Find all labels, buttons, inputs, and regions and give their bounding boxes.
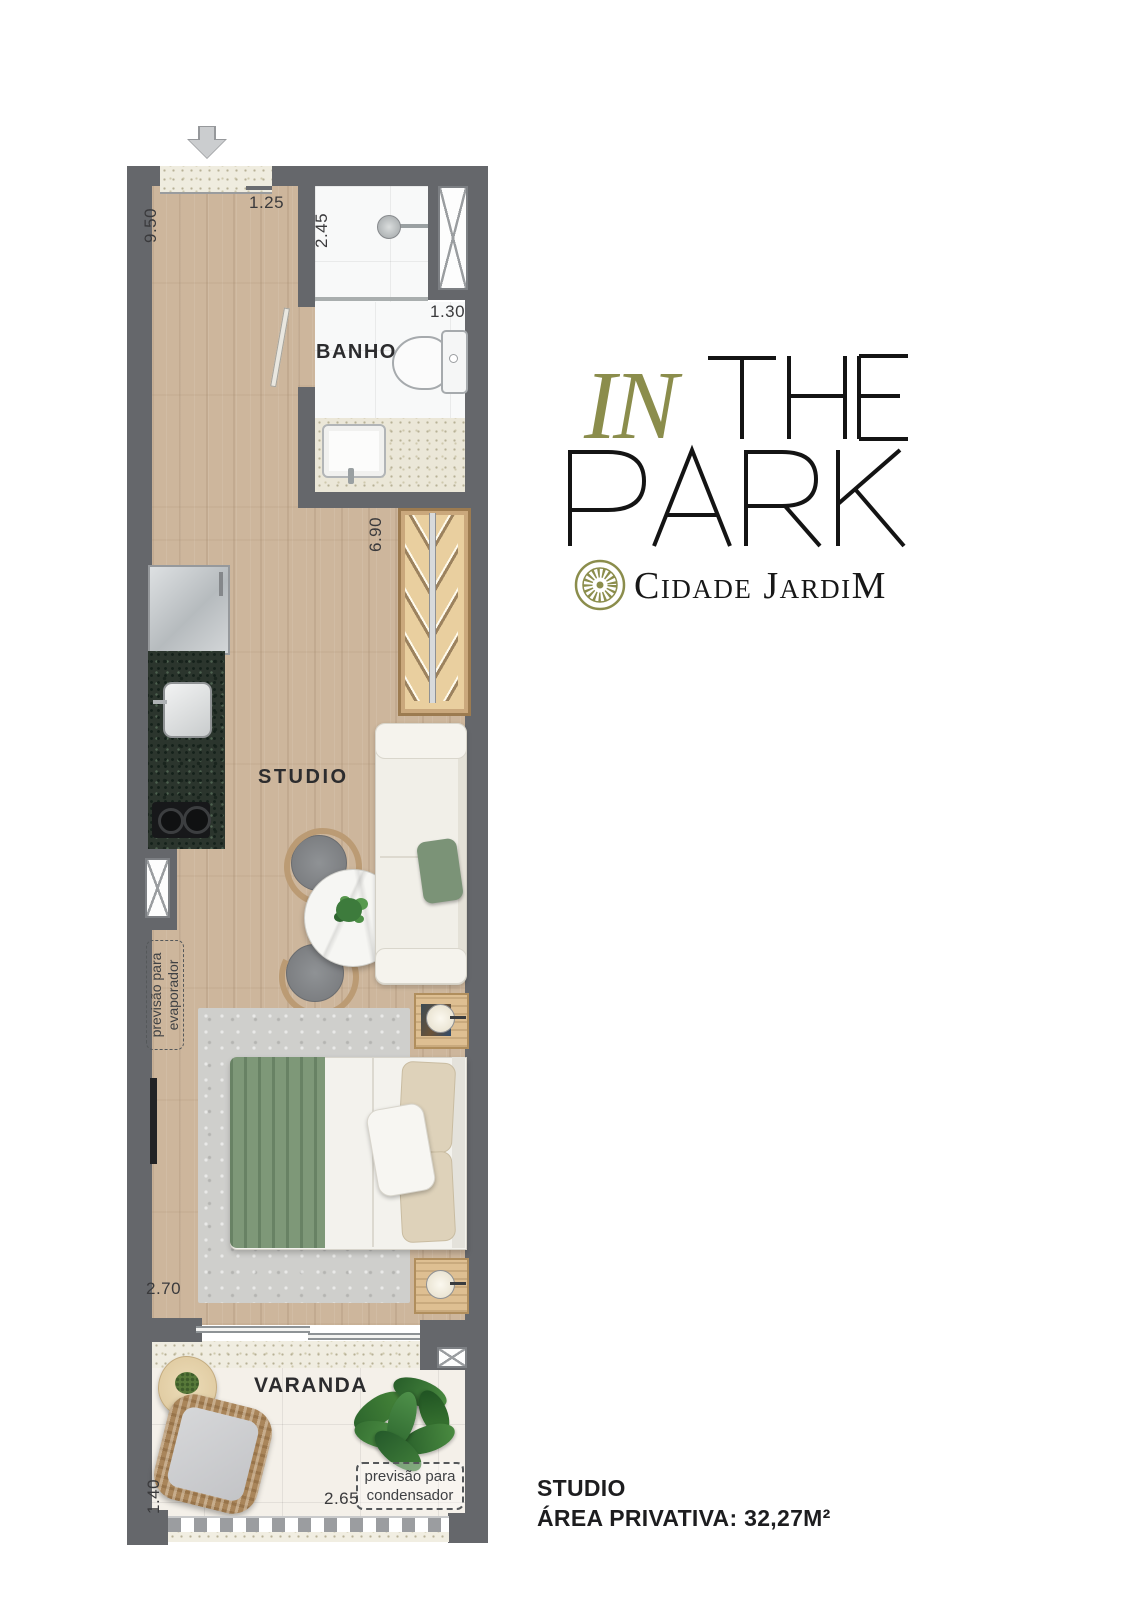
condenser-note-line2: condensador	[358, 1486, 462, 1505]
wall-bottom-right-block	[448, 1513, 488, 1543]
fridge-handle	[219, 572, 223, 596]
shower-head-icon	[377, 215, 401, 239]
table-plant	[336, 898, 362, 922]
toilet-flush-button	[449, 354, 458, 363]
wall-balcony-left-stub	[152, 1318, 202, 1342]
logo-in-text: IN	[583, 352, 683, 459]
room-label-balcony: VARANDA	[254, 1374, 368, 1398]
floorplan-page: previsão para condensador 9.50 1.25 2.45…	[0, 0, 1131, 1600]
logo-park-wordmark	[570, 450, 904, 546]
cooktop-burner	[183, 806, 211, 834]
cooktop-burner	[158, 808, 184, 834]
evaporator-note-line2: evaporador	[165, 943, 182, 1047]
evaporator-note-line1: previsão para	[148, 943, 165, 1047]
condenser-note-line1: previsão para	[358, 1467, 462, 1486]
table-lamp-arm	[450, 1016, 466, 1019]
dim-closet-wall: 6.90	[366, 517, 386, 552]
entry-arrow-head	[189, 140, 225, 158]
wall-bath-bottom	[298, 492, 488, 508]
balcony-railing-ledge	[168, 1532, 449, 1542]
logo-brand-text: Cidade JardiM	[634, 565, 887, 607]
closet	[398, 508, 471, 716]
sofa-armrest	[375, 948, 467, 984]
rosette-icon	[576, 561, 624, 609]
vanity-sink	[322, 424, 386, 478]
footer-private-area: ÁREA PRIVATIVA: 32,27M²	[537, 1505, 831, 1532]
sofa-armrest	[375, 723, 467, 759]
sofa-green-pillow	[416, 838, 464, 905]
dim-entry-width: 1.25	[249, 193, 284, 213]
logo-the-wordmark	[708, 356, 908, 439]
closet-hangers-left	[405, 515, 431, 701]
condenser-note-box: previsão para condensador	[356, 1462, 464, 1510]
kitchen-sink	[163, 682, 212, 738]
wicker-chair-cushion	[165, 1405, 261, 1503]
room-label-studio: STUDIO	[258, 766, 349, 789]
wall-bath-left-lower	[298, 387, 315, 492]
shaft-box	[438, 186, 468, 290]
vanity-faucet	[348, 468, 354, 484]
dim-studio-length: 9.50	[141, 208, 161, 243]
in-the-park-logo: IN Cidade JardiM	[558, 338, 920, 623]
bed-green-blanket	[230, 1057, 325, 1248]
wall-bottom-left-block	[127, 1510, 168, 1545]
evaporator-note-box: previsão para evaporador	[146, 940, 184, 1050]
tv-panel	[150, 1078, 157, 1164]
shower-partition-glass	[315, 297, 428, 301]
entry-arrow-stem	[200, 127, 214, 140]
fridge	[148, 565, 230, 655]
condenser-niche-box	[437, 1347, 467, 1368]
dim-bedroom-width: 2.70	[146, 1279, 181, 1299]
dim-shower-depth: 2.45	[312, 213, 332, 248]
footer-block: STUDIO ÁREA PRIVATIVA: 32,27M²	[537, 1475, 831, 1532]
balcony-stone-table-moss	[175, 1372, 199, 1394]
sliding-door-panel	[196, 1326, 310, 1333]
closet-rail	[429, 513, 436, 703]
entry-arrow-down	[187, 125, 229, 161]
room-label-bathroom: BANHO	[316, 341, 397, 364]
entry-door-leaf	[246, 186, 272, 190]
bath-door-opening-floor	[298, 307, 315, 387]
dim-balcony-depth: 1.40	[144, 1479, 164, 1514]
sliding-door-panel	[308, 1333, 420, 1340]
kitchen-faucet	[153, 700, 167, 704]
dim-balcony-width: 2.65	[324, 1489, 359, 1509]
nightstand-lamp-arm	[450, 1282, 466, 1285]
footer-unit-type: STUDIO	[537, 1475, 831, 1502]
evaporator-niche-box	[145, 858, 170, 918]
dim-bath-width: 1.30	[430, 302, 465, 322]
